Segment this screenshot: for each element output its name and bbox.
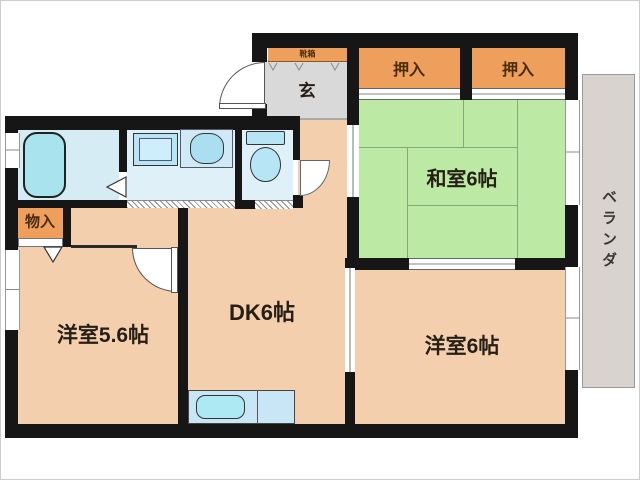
closet-right-label: 押入 <box>502 56 534 80</box>
wall <box>178 204 188 424</box>
wall <box>347 33 359 127</box>
toilet-tank <box>246 131 285 145</box>
wall <box>235 130 242 202</box>
window <box>5 250 20 330</box>
washing-machine-pan <box>133 133 178 166</box>
washroom-sliding-door <box>127 200 235 208</box>
western-room-6-label: 洋室6帖 <box>425 330 500 360</box>
wall <box>235 200 255 209</box>
window <box>565 267 580 370</box>
dining-kitchen-label: DK6帖 <box>229 295 295 327</box>
entrance-door-swing <box>219 62 265 108</box>
wall <box>565 33 578 438</box>
shoe-cabinet-label: 靴箱 <box>300 49 316 60</box>
window <box>565 100 580 205</box>
wall <box>460 33 472 100</box>
wall <box>5 116 300 130</box>
tatami-line <box>463 98 464 148</box>
bathroom-folding-door <box>119 172 127 200</box>
entrance-label: 玄 <box>299 77 316 102</box>
closet-sliding-door <box>472 88 565 100</box>
wall <box>293 195 303 208</box>
japanese-room-label: 和室6帖 <box>426 163 497 192</box>
shoe-cabinet: 靴箱 <box>268 47 347 62</box>
sliding-door <box>347 125 359 197</box>
wash-basin <box>190 133 224 164</box>
wall <box>347 197 359 263</box>
sliding-door <box>409 258 515 270</box>
storage-label: 物入 <box>25 211 55 232</box>
partition-wall <box>71 245 137 248</box>
wall <box>252 33 267 62</box>
washing-machine-inner <box>139 138 172 161</box>
tatami-line <box>358 147 517 148</box>
storage-folding-door <box>18 238 63 247</box>
veranda: ベランダ <box>582 74 635 388</box>
wall <box>345 372 355 424</box>
bathtub <box>23 132 66 198</box>
tatami-line <box>407 205 517 206</box>
wall <box>63 200 71 247</box>
wall <box>293 130 300 160</box>
bedroom-door-leaf <box>171 247 178 293</box>
toilet-bowl <box>250 147 281 182</box>
wall <box>5 424 578 438</box>
window <box>5 133 20 168</box>
sliding-door <box>345 268 355 372</box>
western-room-5-6-label: 洋室5.6帖 <box>57 319 149 349</box>
kitchen-counter-divider <box>257 390 258 424</box>
entrance-door-leaf <box>219 103 266 109</box>
tatami-line <box>517 98 518 260</box>
floor-plan: 靴箱 <box>0 0 640 480</box>
kitchen-sink <box>196 395 245 419</box>
tatami-line <box>407 147 408 260</box>
toilet-threshold <box>255 200 293 209</box>
veranda-label: ベランダ <box>598 189 619 273</box>
closet-left-label: 押入 <box>393 56 425 80</box>
closet-sliding-door <box>359 88 460 100</box>
wall <box>252 33 578 48</box>
